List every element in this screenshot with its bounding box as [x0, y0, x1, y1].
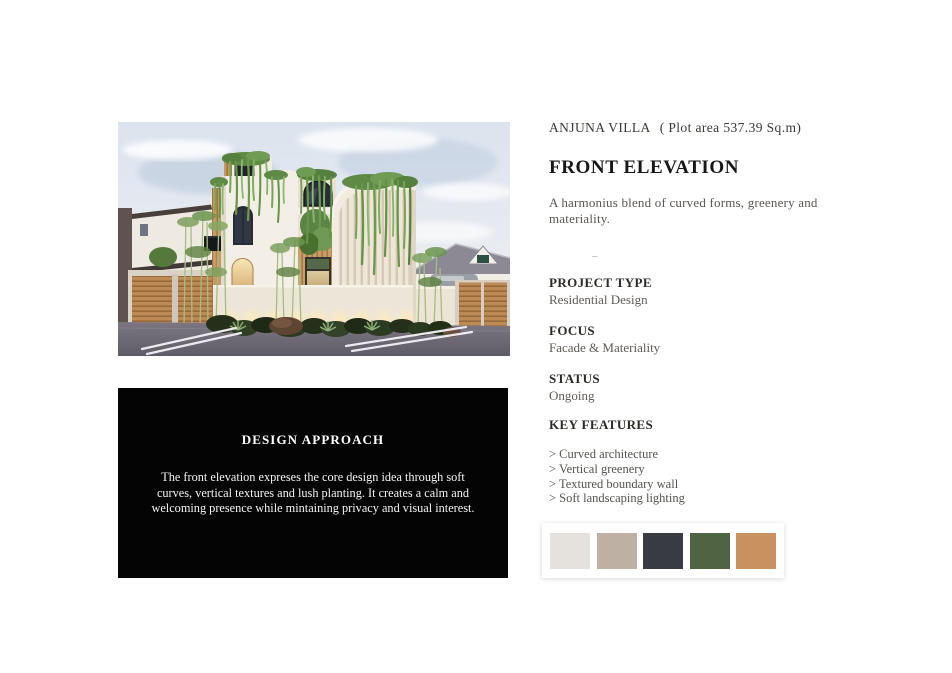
project-type-label: PROJECT TYPE — [549, 275, 871, 291]
subtitle: A harmonius blend of curved forms, green… — [549, 195, 871, 227]
section-status: STATUS Ongoing — [549, 371, 871, 404]
key-features-label: KEY FEATURES — [549, 417, 871, 433]
key-features-list: > Curved architecture > Vertical greener… — [549, 447, 871, 506]
project-type-value: Residential Design — [549, 292, 871, 308]
divider-dash: – — [592, 252, 871, 260]
design-approach-body: The front elevation expreses the core de… — [144, 470, 482, 517]
design-approach-title: DESIGN APPROACH — [144, 432, 482, 448]
portfolio-page: DESIGN APPROACH The front elevation expr… — [0, 0, 952, 673]
palette-swatch-terracotta — [736, 533, 776, 569]
section-focus: FOCUS Facade & Materiality — [549, 323, 871, 356]
front-elevation-render — [118, 122, 510, 356]
palette-swatch-charcoal — [643, 533, 683, 569]
color-palette-card — [542, 523, 784, 578]
status-value: Ongoing — [549, 388, 871, 404]
render-scene — [118, 122, 510, 356]
key-feature-item: > Vertical greenery — [549, 462, 871, 477]
plot-area: ( Plot area 537.39 Sq.m) — [660, 120, 802, 135]
palette-swatch-off-white — [550, 533, 590, 569]
project-title-line: ANJUNA VILLA( Plot area 537.39 Sq.m) — [549, 120, 871, 136]
key-feature-item: > Soft landscaping lighting — [549, 491, 871, 506]
palette-swatch-warm-taupe — [597, 533, 637, 569]
focus-label: FOCUS — [549, 323, 871, 339]
status-label: STATUS — [549, 371, 871, 387]
palette-swatch-olive-green — [690, 533, 730, 569]
project-title: ANJUNA VILLA — [549, 120, 651, 135]
key-feature-item: > Textured boundary wall — [549, 477, 871, 492]
page-title: FRONT ELEVATION — [549, 157, 871, 179]
design-approach-card: DESIGN APPROACH The front elevation expr… — [118, 388, 508, 578]
section-project-type: PROJECT TYPE Residential Design — [549, 275, 871, 308]
focus-value: Facade & Materiality — [549, 340, 871, 356]
project-info-panel: ANJUNA VILLA( Plot area 537.39 Sq.m) FRO… — [549, 120, 871, 536]
key-feature-item: > Curved architecture — [549, 447, 871, 462]
